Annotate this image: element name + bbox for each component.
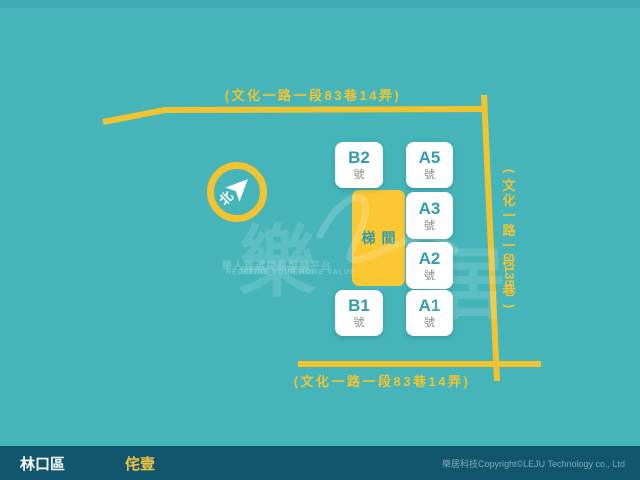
roads-layer — [0, 0, 640, 480]
unit-suffix: 號 — [424, 316, 435, 330]
brand-watermark: 樂 居 華人首選房產服務平台 REDEFINE YOUR HOME VALUE — [0, 0, 640, 480]
unit-name: B1 — [348, 296, 370, 315]
footer-copyright: 樂居科技Copyright©LEJU Technology co., Ltd — [442, 457, 625, 470]
footer-building-name: 侘壹 — [125, 453, 155, 474]
stairwell-block: 梯間 — [352, 190, 405, 286]
unit-name: B2 — [348, 148, 370, 167]
road-label-bottom: (文化一路一段83巷14弄) — [272, 371, 492, 390]
unit-suffix: 號 — [354, 168, 365, 182]
unit-A1[interactable]: A1 號 — [406, 290, 453, 336]
unit-suffix: 號 — [424, 219, 435, 233]
unit-A3[interactable]: A3 號 — [406, 192, 453, 239]
watermark-tagline-en: REDEFINE YOUR HOME VALUE — [226, 269, 356, 276]
unit-A5[interactable]: A5 號 — [406, 142, 453, 188]
unit-name: A2 — [419, 249, 441, 268]
unit-name: A3 — [419, 199, 441, 218]
unit-name: A5 — [419, 148, 441, 167]
road-label-right: (文化一路一段135巷) — [498, 163, 520, 313]
site-map-page: (文化一路一段83巷14弄) (文化一路一段83巷14弄) (文化一路一段135… — [0, 0, 640, 480]
road-label-top: (文化一路一段83巷14弄) — [153, 85, 473, 104]
watermark-tagline-cjk: 華人首選房產服務平台 — [222, 257, 332, 272]
unit-suffix: 號 — [424, 168, 435, 182]
top-edge-strip — [0, 0, 640, 8]
footer-district-label: 林口區 — [20, 453, 65, 474]
footer-bar: 林口區 侘壹 樂居科技Copyright©LEJU Technology co.… — [0, 446, 640, 480]
unit-suffix: 號 — [424, 269, 435, 283]
compass: 北 — [207, 162, 267, 222]
unit-name: A1 — [419, 296, 441, 315]
road-top — [103, 109, 486, 122]
stairwell-label: 梯間 — [362, 228, 402, 248]
unit-A2[interactable]: A2 號 — [406, 242, 453, 289]
road-right — [484, 95, 497, 381]
unit-B1[interactable]: B1 號 — [335, 290, 383, 336]
watermark-script — [0, 0, 640, 480]
unit-B2[interactable]: B2 號 — [335, 142, 383, 188]
unit-suffix: 號 — [354, 316, 365, 330]
